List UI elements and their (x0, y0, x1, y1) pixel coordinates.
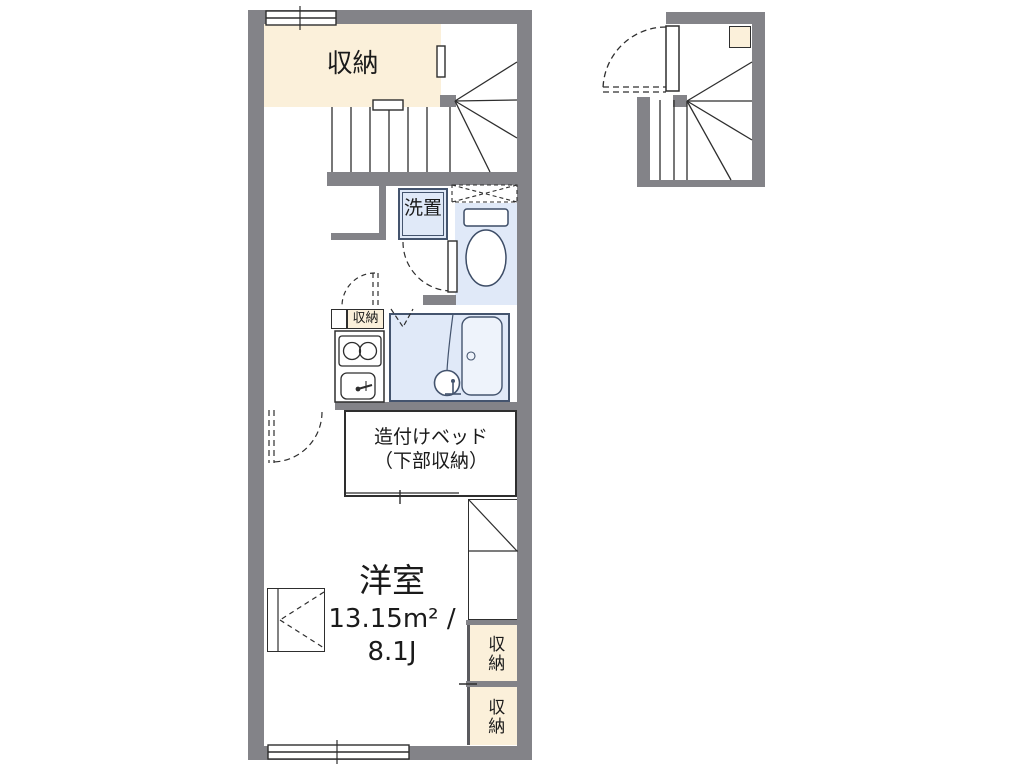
room-entry-door (269, 410, 322, 463)
laundry-label: 洗置 (398, 197, 448, 221)
folding-door-mark (391, 309, 413, 327)
detached-entrance-door (603, 26, 679, 92)
bed-label: 造付けベッド （下部収納） (350, 426, 512, 474)
door-leaf (666, 26, 679, 91)
bed-label-line1: 造付けベッド (350, 426, 512, 450)
upper-cabinet-mark (452, 185, 517, 202)
main-room-label: 洋室 13.15m² / 8.1J (307, 560, 477, 668)
main-room-area-sqm: 13.15m² / (307, 603, 477, 636)
closet-lower-label: 収納 (483, 694, 504, 740)
toilet-door (403, 241, 457, 292)
window-bottom (268, 740, 409, 764)
washbasin-fixture (435, 314, 462, 396)
main-room-name: 洋室 (307, 560, 477, 601)
main-room-area-tatami: 8.1J (307, 636, 477, 669)
bed-bottom-marks (346, 490, 459, 504)
closet-upper-label: 収納 (483, 631, 504, 677)
bed-label-line2: （下部収納） (350, 450, 512, 474)
closet-lower-door-edge (467, 687, 470, 745)
kitchen-entry-door (342, 273, 378, 306)
bathtub-fixture (462, 317, 502, 395)
toilet-fixture (464, 209, 508, 286)
storage-top-label: 収納 (264, 48, 441, 81)
kitchen-storage-label: 収納 (347, 311, 384, 327)
refrigerator-marks (468, 500, 518, 551)
door-leaf (448, 241, 457, 292)
floor-plan-canvas: 収納 洗置 収納 造付けベッド （下部収納） 洋室 13.15m² / 8.1J… (0, 0, 1017, 772)
window-top (266, 6, 336, 30)
